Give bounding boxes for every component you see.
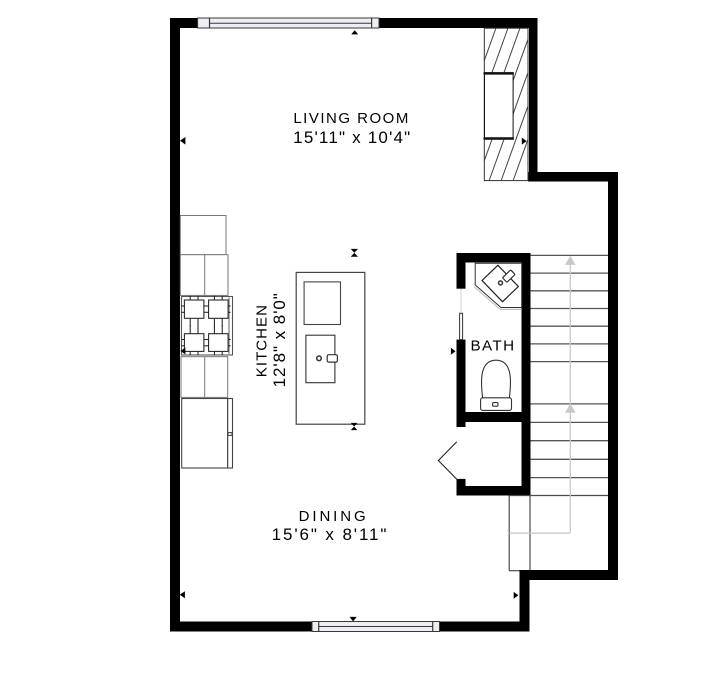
svg-text:12'8" x 8'0": 12'8" x 8'0" <box>270 292 289 387</box>
svg-text:15'6" x 8'11": 15'6" x 8'11" <box>272 525 389 544</box>
svg-text:LIVING ROOM: LIVING ROOM <box>293 110 410 127</box>
svg-text:DINING: DINING <box>299 508 369 525</box>
svg-text:KITCHEN: KITCHEN <box>254 304 271 377</box>
svg-text:BATH: BATH <box>471 338 516 355</box>
svg-text:15'11" x 10'4": 15'11" x 10'4" <box>293 128 411 147</box>
